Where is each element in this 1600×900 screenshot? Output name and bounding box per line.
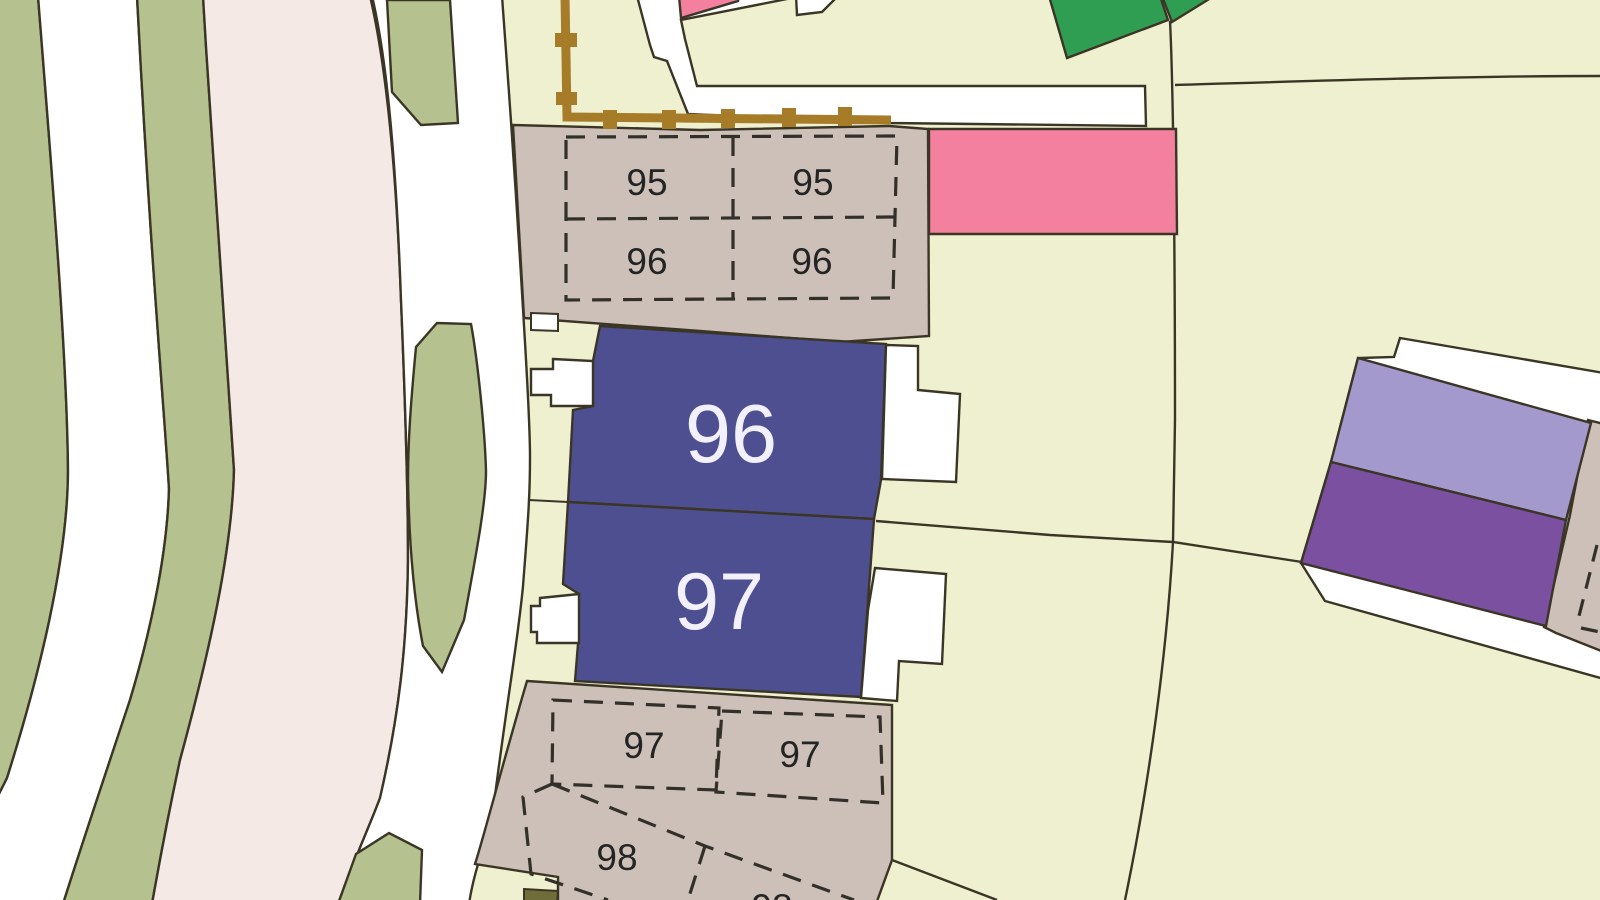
svg-text:98: 98 <box>751 887 792 900</box>
svg-text:98: 98 <box>596 837 637 878</box>
svg-text:96: 96 <box>685 387 777 480</box>
svg-text:96: 96 <box>626 241 667 282</box>
svg-text:97: 97 <box>623 725 664 766</box>
svg-text:96: 96 <box>791 241 832 282</box>
svg-text:97: 97 <box>674 557 764 647</box>
svg-text:95: 95 <box>792 162 833 203</box>
svg-text:97: 97 <box>779 734 820 775</box>
svg-text:95: 95 <box>626 162 667 203</box>
